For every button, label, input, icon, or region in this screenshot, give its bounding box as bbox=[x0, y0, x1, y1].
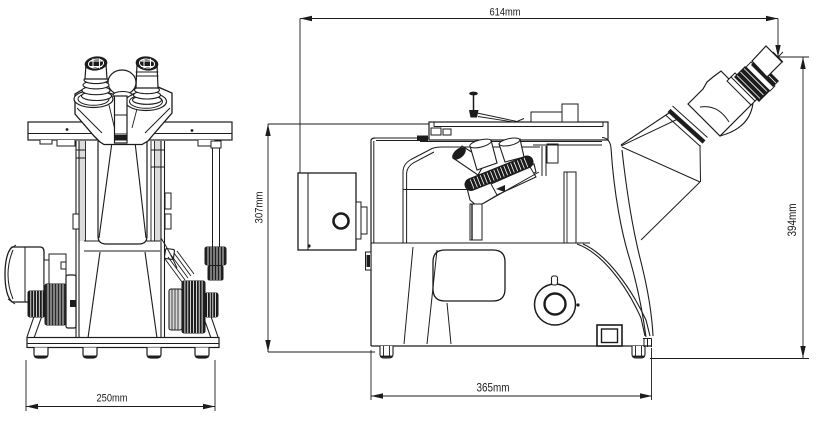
svg-text:394mm: 394mm bbox=[787, 204, 799, 237]
svg-text:365mm: 365mm bbox=[477, 383, 510, 395]
svg-text:614mm: 614mm bbox=[490, 7, 521, 19]
svg-text:250mm: 250mm bbox=[97, 393, 128, 405]
svg-text:307mm: 307mm bbox=[254, 192, 266, 224]
